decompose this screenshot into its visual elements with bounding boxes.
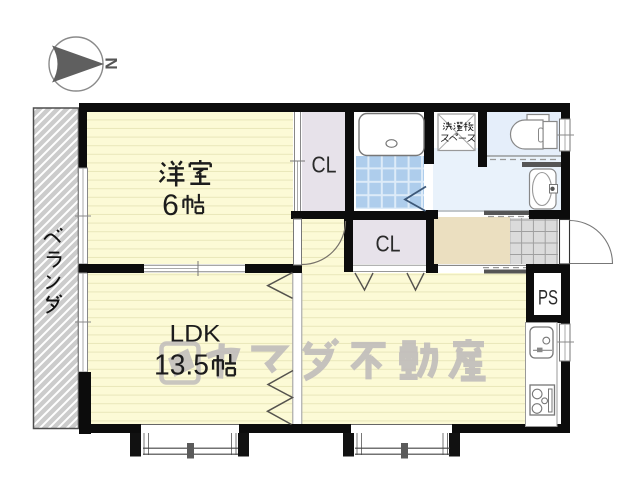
svg-text:6: 6 — [162, 189, 179, 222]
svg-text:CL: CL — [312, 152, 337, 178]
svg-text:LDK: LDK — [170, 321, 221, 348]
svg-text:N: N — [102, 57, 121, 69]
svg-text:CL: CL — [376, 231, 401, 257]
svg-text:13.5: 13.5 — [154, 350, 209, 382]
svg-text:PS: PS — [538, 287, 558, 310]
